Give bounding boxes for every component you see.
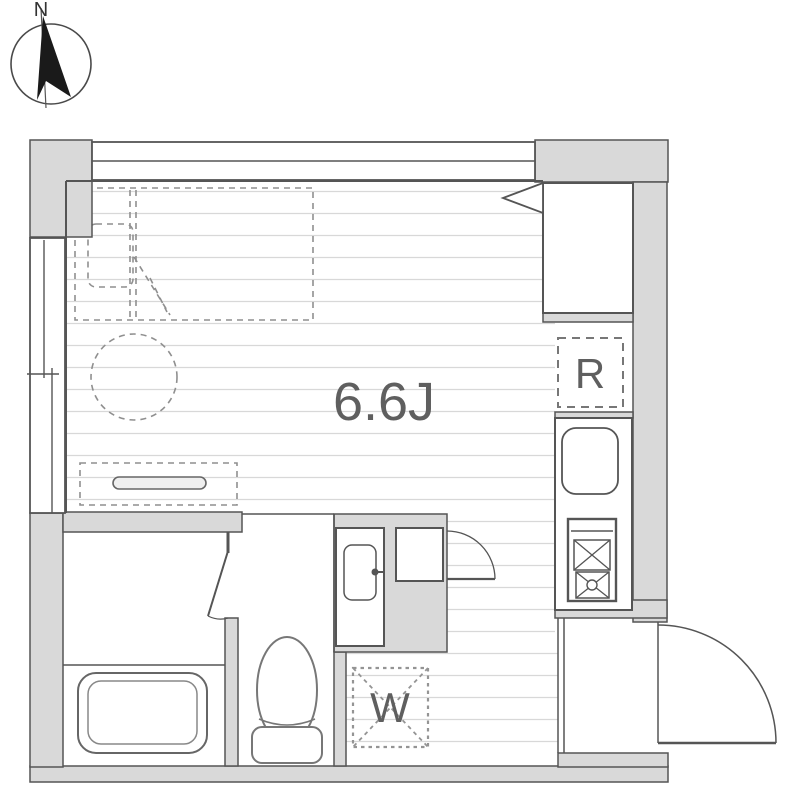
kitchen-counter [555, 418, 632, 610]
kitchen-sink [562, 428, 618, 494]
wall-right [633, 182, 667, 622]
wall-toilet-laundry [334, 652, 346, 766]
room-size-label: 6.6J [333, 372, 435, 432]
bathroom-door [208, 532, 228, 619]
window-left [27, 238, 65, 513]
compass-north-label: N [34, 0, 48, 21]
vanity-unit [336, 528, 385, 646]
wall-left-lower [30, 513, 63, 767]
wall-under-closet [543, 313, 633, 322]
wall-top-left [30, 140, 92, 237]
bathtub [78, 673, 207, 753]
wall-room-bathroom [63, 512, 242, 532]
washer-label: W [370, 684, 410, 731]
refrigerator-space: R [558, 338, 623, 407]
toilet [252, 637, 322, 763]
entrance [558, 618, 776, 753]
stove [568, 519, 616, 601]
wall-top-right [535, 140, 668, 182]
bathroom [63, 532, 228, 753]
window-top [92, 142, 535, 180]
wall-bottom-entrance [558, 753, 668, 767]
floor-plan-drawing: N [0, 0, 795, 800]
floor-plan-page: N [0, 0, 795, 800]
wall-bottom [30, 766, 668, 782]
wall-bath-toilet [225, 618, 238, 766]
compass-north-icon: N [11, 0, 91, 108]
refrigerator-label: R [575, 350, 605, 397]
entrance-door [658, 622, 776, 743]
